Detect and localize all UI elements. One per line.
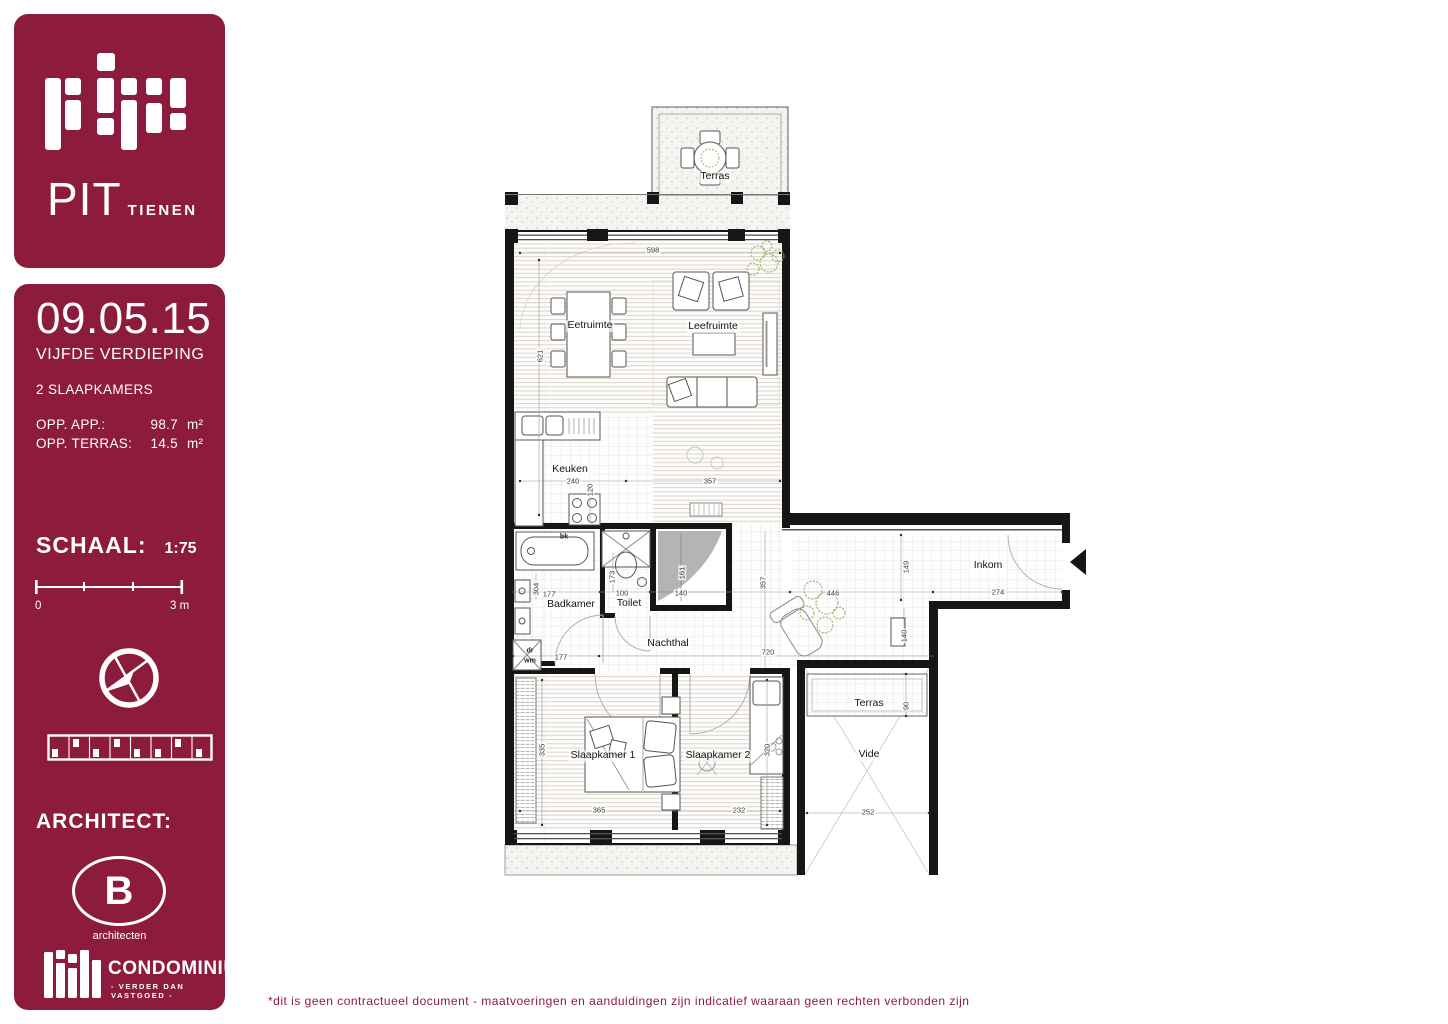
entrance-arrow-icon <box>1070 549 1086 575</box>
dining-set <box>551 292 626 377</box>
area-value: 14.5 <box>140 436 178 451</box>
dim-label: 335 <box>538 743 546 758</box>
dim-label: 598 <box>646 246 661 254</box>
area-row-terrace: OPP. TERRAS: 14.5 m² <box>36 436 203 451</box>
dim-label: 232 <box>732 806 747 814</box>
dim-label: 304 <box>532 582 540 597</box>
room-label-slaapkamer1: Slaapkamer 1 <box>569 750 638 762</box>
dim-label: 446 <box>826 589 841 597</box>
condominium-name: CONDOMINIUM <box>108 958 254 980</box>
architect-initial: B <box>105 871 134 911</box>
area-unit: m² <box>187 436 203 451</box>
dim-label: 140 <box>674 589 689 597</box>
dim-label: 274 <box>991 588 1006 596</box>
washer-label: wm <box>524 658 536 665</box>
pit-logo-panel: PIT TIENEN <box>14 14 225 268</box>
room-label-leefruimte: Leefruimte <box>686 321 740 333</box>
room-label-terras-bottom: Terras <box>852 698 885 710</box>
building-section-icon <box>47 734 213 761</box>
room-label-toilet: Toilet <box>615 598 644 610</box>
area-unit: m² <box>187 417 203 432</box>
pit-title: PIT <box>47 172 122 226</box>
architect-logo: B <box>72 856 166 926</box>
dim-label: 100 <box>615 589 630 597</box>
room-label-keuken: Keuken <box>550 464 590 476</box>
dim-label: 621 <box>536 349 544 364</box>
room-label-nachthal: Nachthal <box>645 638 690 650</box>
dim-label: 720 <box>761 648 776 656</box>
area-label: OPP. APP.: <box>36 417 140 432</box>
disclaimer-text: *dit is geen contractueel document - maa… <box>268 994 969 1008</box>
architect-label: ARCHITECT: <box>36 810 172 834</box>
floorplan-sheet: PIT TIENEN 09.05.15 VIJFDE VERDIEPING 2 … <box>0 0 1448 1024</box>
dim-label: 90 <box>902 701 910 711</box>
dim-label: 357 <box>759 576 767 591</box>
scale-value: 1:75 <box>165 540 197 558</box>
compass-icon <box>93 642 165 714</box>
room-label-inkom: Inkom <box>972 560 1005 572</box>
dim-label: 120 <box>586 483 594 498</box>
dim-label: 357 <box>703 477 718 485</box>
room-label-badkamer: Badkamer <box>545 599 597 611</box>
dim-label: 365 <box>592 806 607 814</box>
scale-row: SCHAAL: 1:75 <box>36 532 197 559</box>
area-value: 98.7 <box>140 417 178 432</box>
room-label-terras-top: Terras <box>698 171 731 183</box>
dim-label: 173 <box>608 570 616 585</box>
condominium-logo: CONDOMINIUM - VERDER DAN VASTGOED - <box>28 944 218 1008</box>
room-label-eetruimte: Eetruimte <box>566 320 615 332</box>
room-label-vide: Vide <box>857 749 882 761</box>
dim-label: 320 <box>763 743 771 758</box>
pit-wordmark: PIT TIENEN <box>47 172 198 226</box>
scalebar-end: 3 m <box>170 600 189 612</box>
scale-label: SCHAAL: <box>36 532 147 559</box>
info-panel: 09.05.15 VIJFDE VERDIEPING 2 SLAAPKAMERS… <box>14 284 225 1010</box>
cooktop-label: bk <box>560 534 568 541</box>
scalebar-icon <box>34 577 186 597</box>
room-label-slaapkamer2: Slaapkamer 2 <box>684 750 753 762</box>
technical-shaft <box>650 523 732 611</box>
dim-label: 140 <box>900 629 908 644</box>
area-label: OPP. TERRAS: <box>36 436 140 451</box>
pit-subtitle: TIENEN <box>128 202 198 219</box>
dim-label: 252 <box>861 808 876 816</box>
plan-date: 09.05.15 <box>36 294 211 344</box>
condominium-tagline: - VERDER DAN VASTGOED - <box>111 982 218 1000</box>
scalebar-start: 0 <box>35 600 41 612</box>
dim-label: 177 <box>542 590 557 598</box>
dim-label: 177 <box>554 653 569 661</box>
dim-label: 149 <box>902 560 910 575</box>
dryer-label: dr <box>527 648 534 655</box>
area-row-apartment: OPP. APP.: 98.7 m² <box>36 417 203 432</box>
dim-label: 240 <box>566 477 581 485</box>
dim-label: 161 <box>678 566 686 581</box>
apartment-type: 2 SLAAPKAMERS <box>36 382 153 397</box>
architect-name: architecten <box>72 930 167 942</box>
floor-name: VIJFDE VERDIEPING <box>36 346 204 364</box>
